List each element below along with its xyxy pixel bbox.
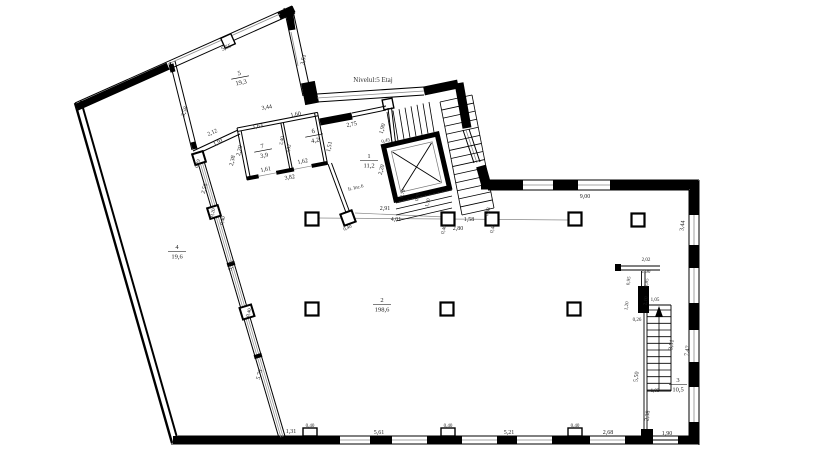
- floor-plan-drawing: Nivelul:5 Etaj 519,373,964,2111,22198,64…: [0, 0, 813, 469]
- wall-pilaster: [568, 428, 582, 436]
- dimension-label: 5,73: [256, 369, 265, 381]
- room-area: 4,2: [310, 137, 319, 145]
- dimension-label: 1,20: [624, 301, 630, 311]
- stair-wall-pillar: [641, 429, 653, 443]
- room-area: 3,9: [259, 152, 268, 160]
- annotation-labels: It. Inc.6: [348, 184, 365, 193]
- room-label: 73,9: [253, 141, 274, 161]
- floor-plan-page: Nivelul:5 Etaj 519,373,964,2111,22198,64…: [0, 0, 813, 469]
- dimension-label: 5,21: [504, 430, 515, 436]
- room-label: 64,2: [304, 126, 325, 146]
- dimension-label: 1,90: [642, 270, 651, 275]
- dimension-label: 2,56: [201, 183, 210, 195]
- dimension-label: 0,40: [441, 225, 448, 235]
- dimension-label: 0,40: [306, 424, 315, 429]
- room-number: 4: [175, 244, 179, 251]
- dimension-label: 2,52: [286, 144, 293, 154]
- dimension-label: 5,55: [221, 43, 233, 53]
- stair-direction-arrow: [655, 306, 663, 317]
- dimension-label: 3,58: [181, 106, 190, 118]
- dimension-label: 2,38: [644, 410, 651, 421]
- room-number: 1: [367, 153, 370, 160]
- dimension-label: 1,63: [252, 123, 263, 131]
- dimension-label: 3,51: [300, 54, 308, 66]
- dimension-label: 1,05: [651, 298, 660, 303]
- room-area: 11,2: [363, 163, 374, 170]
- dimension-label: 3,82: [284, 174, 295, 182]
- dimension-label: 0,40: [444, 424, 453, 429]
- wall-corner-block: [301, 81, 319, 105]
- dimension-label: 1,91: [213, 138, 225, 148]
- room-area: 10,5: [672, 387, 683, 394]
- room-number: 7: [260, 143, 265, 151]
- dimension-label: 5,50: [633, 371, 640, 382]
- dimension-label: 1,58: [464, 217, 475, 223]
- room-label: 519,3: [230, 68, 251, 88]
- dimension-label: 2,75: [346, 121, 357, 129]
- dimension-label: 0,40: [571, 424, 580, 429]
- room-number: 2: [380, 297, 383, 304]
- dimension-label: 1,61: [260, 166, 271, 174]
- dimension-label: 4,01: [391, 217, 402, 223]
- dimension-label: 9,00: [580, 194, 591, 200]
- secondary-staircase: [615, 264, 687, 443]
- dimension-label: 2,91: [380, 206, 391, 212]
- room-area: 19,3: [235, 78, 248, 87]
- plan-title: Nivelul:5 Etaj: [353, 76, 393, 84]
- room-number: 6: [311, 128, 316, 136]
- dimension-label: 1,05: [651, 389, 660, 394]
- room-label: 111,2: [360, 153, 378, 170]
- room-labels: 519,373,964,2111,22198,6419,6310,5: [168, 68, 687, 393]
- dimension-label: 7,47: [684, 345, 691, 356]
- room-area: 19,6: [171, 254, 183, 261]
- dimension-label: 3,44: [679, 220, 686, 231]
- dimension-label: 0,85: [644, 278, 650, 288]
- room-label: 310,5: [669, 377, 687, 394]
- annotation-label: It. Inc.6: [348, 184, 365, 193]
- dimension-label: 1,31: [286, 429, 297, 435]
- dimension-label: 1,51: [326, 141, 334, 153]
- dimension-label: 2,20: [378, 164, 387, 176]
- room-area: 198,6: [375, 307, 390, 314]
- room-number: 3: [676, 377, 679, 384]
- dimension-label: 5,61: [374, 430, 385, 436]
- dimension-label: 2,68: [603, 430, 614, 436]
- interior-walls: [170, 61, 568, 438]
- dimension-label: 1,90: [662, 431, 673, 437]
- dimension-label: 3,44: [261, 104, 272, 112]
- dimension-label: 0,95: [626, 276, 632, 286]
- dimension-label: 0,26: [633, 318, 642, 323]
- dimension-label: 2,20: [236, 145, 244, 157]
- dimension-label: 1,50: [425, 198, 432, 208]
- room-label: 419,6: [168, 244, 186, 261]
- wall-pilaster: [303, 428, 317, 436]
- dimension-label: 1,90: [379, 123, 388, 135]
- room-label: 2198,6: [373, 297, 391, 314]
- dimension-label: 2,38: [229, 155, 237, 167]
- dimension-label: 0,70: [415, 192, 422, 202]
- room-number: 5: [237, 70, 242, 77]
- exterior-walls: [75, 6, 699, 445]
- dimension-label: 2,02: [642, 258, 651, 263]
- wall-pilaster: [441, 428, 455, 436]
- dimension-label: 1,60: [290, 111, 301, 119]
- dimension-label: 2,12: [207, 128, 219, 138]
- dimension-label: 1,62: [297, 158, 308, 166]
- dimension-labels: 5,553,513,582,121,913,441,631,602,752,20…: [181, 43, 692, 437]
- dimension-label: 2,80: [453, 226, 464, 232]
- elevator-shaft: [384, 134, 450, 200]
- dimension-label: 3,51: [668, 339, 675, 350]
- dimension-label: 0,40: [490, 224, 497, 234]
